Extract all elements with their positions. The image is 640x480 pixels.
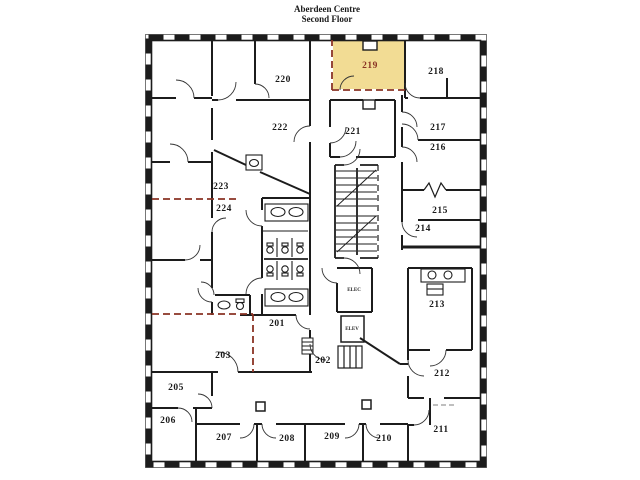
room-label-223: 223	[213, 182, 229, 192]
room-label-202: 202	[315, 356, 331, 366]
building-title: Aberdeen Centre	[294, 4, 360, 14]
washroom-fixtures	[262, 204, 308, 306]
room-label-209: 209	[324, 432, 340, 442]
columns	[256, 400, 371, 411]
room-labels: 2012022032052062072082092102112122132142…	[160, 61, 450, 444]
room-label-218: 218	[428, 67, 444, 77]
room-label-216: 216	[430, 143, 446, 153]
room-label-222: 222	[272, 123, 288, 133]
room-label-201: 201	[269, 319, 285, 329]
exit-stair	[338, 346, 362, 368]
floor-plan-page: Aberdeen Centre Second Floor	[0, 0, 640, 480]
room-label-206: 206	[160, 416, 176, 426]
service-label-elev: ELEV	[345, 327, 359, 332]
room-219-notch	[363, 41, 377, 50]
floor-subtitle: Second Floor	[302, 14, 353, 24]
wc-fixtures	[218, 155, 262, 310]
room-label-217: 217	[430, 123, 446, 133]
room-label-215: 215	[432, 206, 448, 216]
room-label-213: 213	[429, 300, 445, 310]
room-label-212: 212	[434, 369, 450, 379]
room-label-219: 219	[362, 61, 378, 71]
service-label-elec: ELEC	[347, 288, 361, 293]
room-label-207: 207	[216, 433, 232, 443]
closet-shelves	[302, 338, 313, 354]
room-label-221: 221	[345, 127, 361, 137]
room-label-203: 203	[215, 351, 231, 361]
title: Aberdeen Centre Second Floor	[294, 4, 360, 24]
room-label-224: 224	[216, 204, 232, 214]
room-label-210: 210	[376, 434, 392, 444]
service-room-labels: ELECELEV	[345, 288, 361, 332]
room-label-211: 211	[433, 425, 448, 435]
stairwell	[335, 165, 378, 258]
room-label-208: 208	[279, 434, 295, 444]
kitchen-fixtures	[421, 269, 465, 295]
floor-plan: Aberdeen Centre Second Floor	[0, 0, 640, 480]
room-label-214: 214	[415, 224, 431, 234]
outer-wall	[146, 35, 487, 468]
room-label-205: 205	[168, 383, 184, 393]
interior-walls	[151, 40, 481, 462]
room-label-220: 220	[275, 75, 291, 85]
